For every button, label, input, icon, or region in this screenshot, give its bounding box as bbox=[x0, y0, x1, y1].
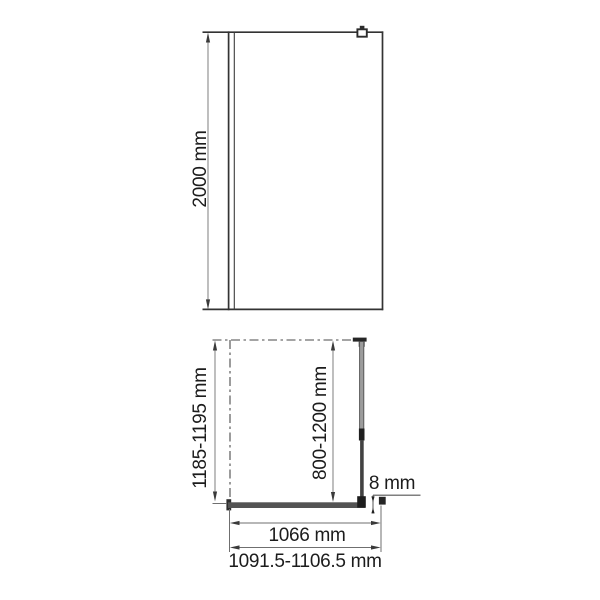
support-bracket-icon bbox=[357, 26, 366, 37]
arrow-down-icon bbox=[371, 496, 374, 502]
drawing-linework bbox=[0, 0, 600, 600]
support-bar-wall-plate bbox=[353, 338, 367, 342]
arrow-down-icon bbox=[206, 299, 210, 309]
dim-label-support-bar: 800-1200 mm bbox=[310, 323, 332, 523]
glass-bar bbox=[228, 502, 366, 508]
bracket-body bbox=[357, 29, 366, 36]
front-view bbox=[203, 26, 384, 310]
wall-anchor-block bbox=[379, 497, 386, 505]
dim-label-glass-width: 1066 mm bbox=[207, 525, 407, 547]
arrow-up-icon bbox=[213, 341, 217, 351]
dim-label-depth: 1185-1195 mm bbox=[190, 328, 212, 528]
bar-glass-clamp bbox=[357, 496, 366, 507]
dim-label-thickness: 8 mm bbox=[342, 473, 442, 495]
dim-label-height: 2000 mm bbox=[190, 69, 212, 269]
glass-panel-plan bbox=[226, 496, 385, 510]
arrow-up-icon bbox=[371, 508, 374, 514]
dim-depth-1185-1195 bbox=[213, 341, 228, 504]
dim-label-overall-width: 1091.5-1106.5 mm bbox=[155, 551, 455, 573]
shower-screen-technical-drawing: 2000 mm 1185-1195 mm 800-1200 mm 8 mm 10… bbox=[0, 0, 600, 600]
dim-thickness-8 bbox=[371, 495, 420, 513]
support-bar-outer-tube bbox=[360, 342, 364, 430]
arrow-down-icon bbox=[213, 492, 217, 502]
arrow-up-icon bbox=[206, 33, 210, 43]
support-bar-lock bbox=[359, 429, 365, 441]
